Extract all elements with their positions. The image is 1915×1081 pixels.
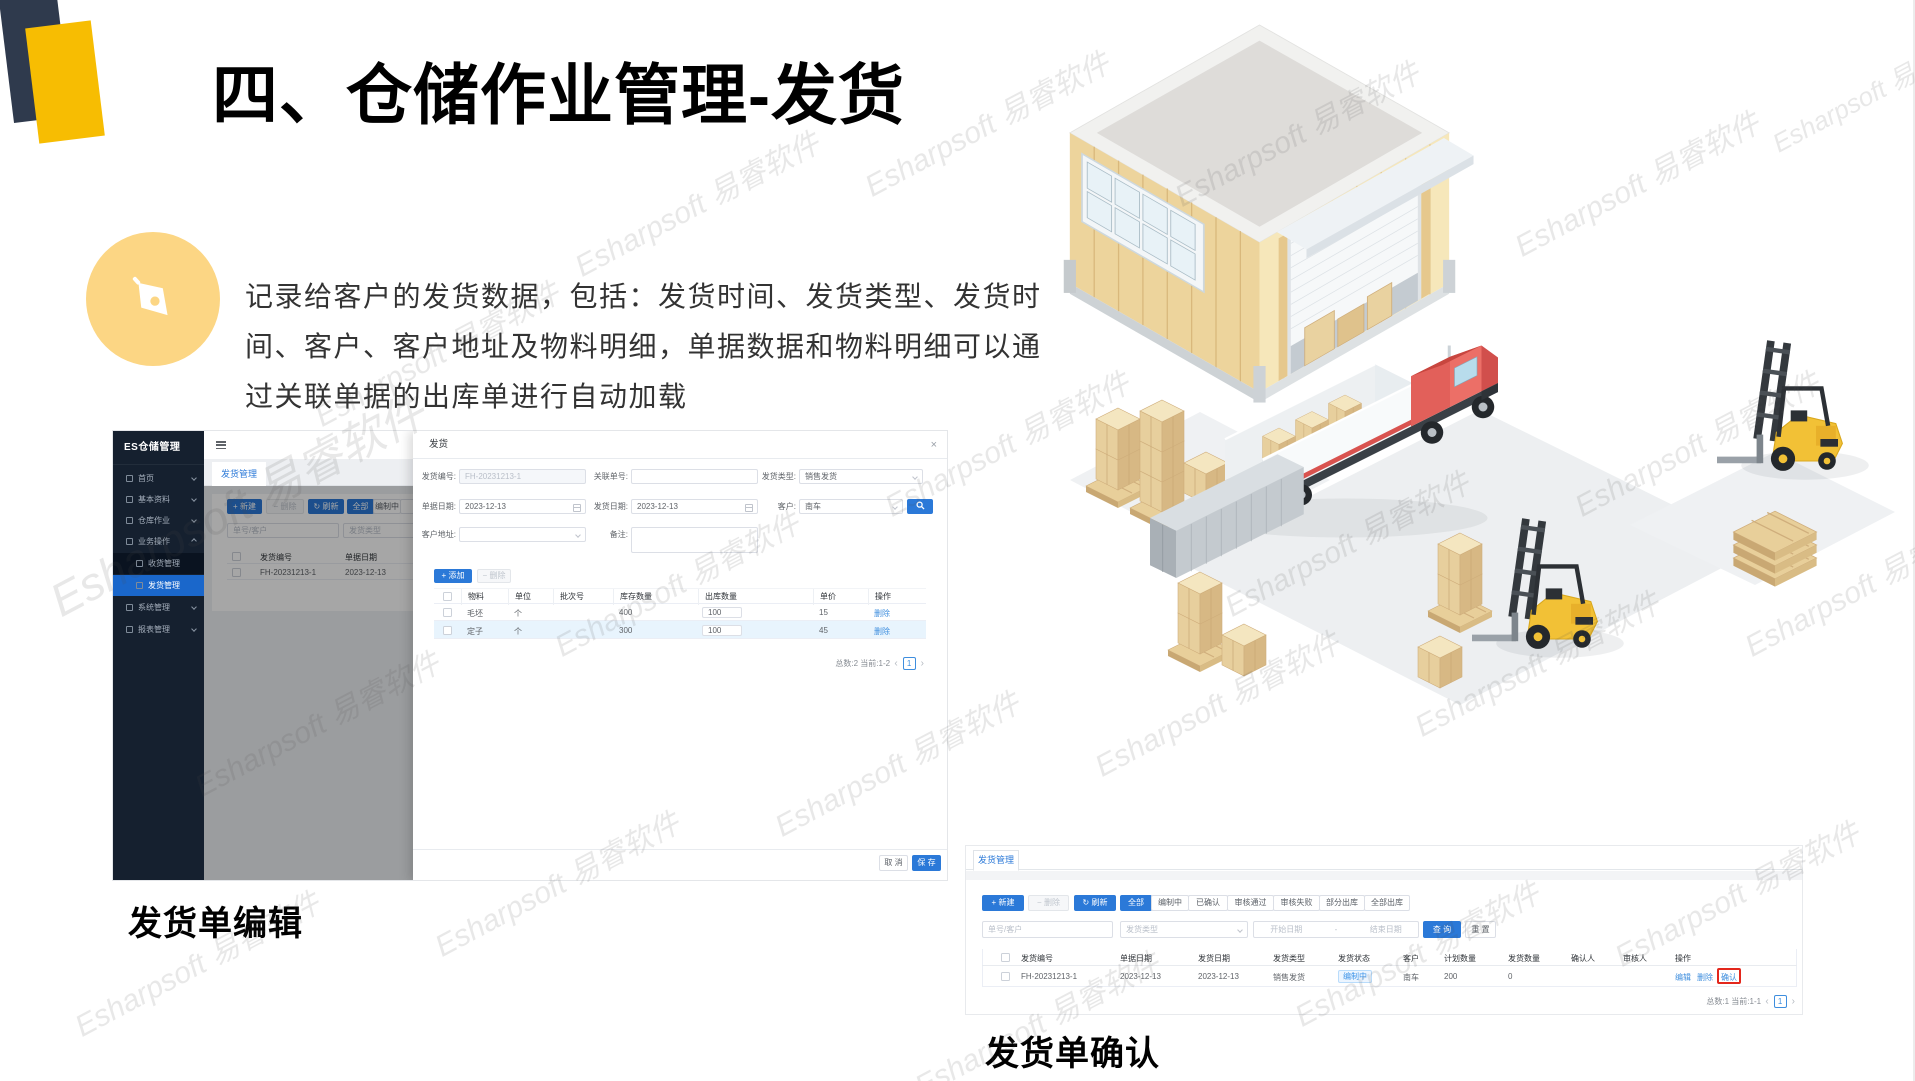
desc-line: 记录给客户的发货数据，包括：发货时间、发货类型、发货时: [245, 272, 1055, 322]
chevron-down-icon: [575, 532, 581, 538]
chevron-down-icon: [191, 475, 197, 481]
receiving-icon: [136, 560, 143, 567]
sidebar-item-shipping[interactable]: 发货管理: [113, 575, 204, 596]
field-label: 客户:: [749, 499, 796, 514]
chevron-down-icon: [892, 504, 898, 510]
remove-detail-button[interactable]: − 删除: [477, 569, 511, 583]
chevron-down-icon: [191, 604, 197, 610]
plus-icon: +: [992, 898, 997, 907]
dialog-header: 发货 ×: [413, 431, 948, 459]
caption-edit: 发货单编辑: [128, 896, 303, 945]
sidebar-item-business-ops[interactable]: 业务操作: [113, 531, 204, 552]
doc-date-field[interactable]: 2023-12-13: [459, 499, 586, 514]
field-label: 单据日期:: [413, 499, 456, 514]
sidebar-item-base-data[interactable]: 基本资料: [113, 489, 204, 510]
add-detail-button[interactable]: + 添加: [434, 569, 472, 583]
row-checkbox[interactable]: [443, 626, 452, 635]
chevron-down-icon: [191, 517, 197, 523]
page-number[interactable]: 1: [1774, 995, 1787, 1008]
page-number[interactable]: 1: [903, 657, 916, 670]
forklift-right: [1717, 340, 1869, 479]
row-checkbox[interactable]: [443, 608, 452, 617]
remark-textarea[interactable]: [631, 527, 758, 553]
watermark-text: Esharpsoft 易睿软件: [566, 119, 827, 285]
home-icon: [126, 475, 133, 482]
delete-link[interactable]: 删除: [874, 626, 890, 637]
field-label: 关联单号:: [581, 469, 628, 484]
table-row[interactable]: FH-20231213-1 2023-12-13 2023-12-13 销售发货…: [982, 966, 1797, 987]
select-all-checkbox[interactable]: [1001, 953, 1010, 962]
feature-description: 记录给客户的发货数据，包括：发货时间、发货类型、发货时 间、客户、客户地址及物料…: [245, 272, 1055, 422]
delete-link[interactable]: 删除: [1697, 972, 1713, 983]
base-data-icon: [126, 496, 133, 503]
reset-button[interactable]: 重 置: [1465, 921, 1496, 938]
field-label: 发货编号:: [413, 469, 456, 484]
customer-search-button[interactable]: [907, 499, 933, 514]
desc-line: 过关联单据的出库单进行自动加载: [245, 372, 1055, 422]
sidebar-item-warehouse-ops[interactable]: 仓库作业: [113, 510, 204, 531]
out-qty-input[interactable]: 100: [702, 625, 742, 636]
order-customer-input[interactable]: 单号/客户: [982, 921, 1113, 938]
page-title: 四、仓储作业管理-发货: [212, 42, 905, 138]
customer-select[interactable]: 南车: [799, 499, 903, 514]
field-label: 发货类型:: [749, 469, 796, 484]
field-label: 客户地址:: [413, 527, 456, 542]
delete-button[interactable]: − 删除: [1028, 895, 1069, 911]
confirm-link[interactable]: 确认: [1721, 973, 1737, 982]
refresh-icon: ↻: [1083, 898, 1090, 907]
select-all-checkbox[interactable]: [443, 592, 452, 601]
filter-drafting[interactable]: 编制中: [1151, 895, 1189, 911]
minus-icon: −: [1037, 898, 1042, 907]
next-page-icon[interactable]: ›: [1792, 996, 1795, 1007]
sidebar: ES仓储管理 首页 基本资料 仓库作业 业务操作: [113, 431, 204, 880]
desc-line: 间、客户、客户地址及物料明细，单据数据和物料明细可以通: [245, 322, 1055, 372]
out-qty-input[interactable]: 100: [702, 607, 742, 618]
page-strip: [966, 871, 1802, 880]
chevron-down-icon: [912, 474, 918, 480]
filter-audit-failed[interactable]: 审核失败: [1273, 895, 1320, 911]
confirm-highlight-box: 确认: [1717, 968, 1741, 984]
chevron-down-icon: [191, 626, 197, 632]
business-ops-icon: [126, 538, 133, 545]
dialog-footer-divider: [413, 849, 948, 850]
calendar-icon: [573, 504, 581, 512]
detail-row[interactable]: 毛坯 个 400 100 15 删除: [434, 604, 926, 621]
field-label: 备注:: [581, 527, 628, 542]
new-button[interactable]: + 新建: [982, 895, 1024, 911]
plus-icon: +: [442, 571, 447, 580]
warehouse-building: [1064, 25, 1474, 403]
next-page-icon[interactable]: ›: [921, 658, 924, 669]
ship-date-field[interactable]: 2023-12-13: [631, 499, 758, 514]
dialog-title: 发货: [429, 431, 448, 459]
warehouse-illustration: [1030, 0, 1910, 715]
confirm-screenshot: 发货管理 + 新建 − 删除 ↻ 刷新 全部 编制中 已确认 审核通过 审核失败…: [965, 845, 1803, 1015]
gear-icon: [126, 604, 133, 611]
customer-address-select[interactable]: [459, 527, 586, 542]
edit-link[interactable]: 编辑: [1675, 972, 1691, 983]
corner-shape-yellow: [25, 20, 105, 143]
chevron-down-icon: [191, 496, 197, 502]
tab-shipping[interactable]: 发货管理: [212, 462, 266, 486]
row-checkbox[interactable]: [1001, 972, 1010, 981]
caption-confirm: 发货单确认: [985, 1026, 1160, 1075]
chevron-down-icon: [1237, 927, 1243, 933]
sidebar-item-home[interactable]: 首页: [113, 468, 204, 489]
filter-confirmed[interactable]: 已确认: [1188, 895, 1228, 911]
pen-icon: [124, 270, 182, 328]
ref-order-field[interactable]: [631, 469, 758, 484]
sidebar-item-receiving[interactable]: 收货管理: [113, 553, 204, 574]
date-range-input[interactable]: 开始日期 - 结束日期: [1253, 921, 1419, 938]
prev-page-icon[interactable]: ‹: [894, 658, 897, 669]
tab-shipping[interactable]: 发货管理: [973, 850, 1019, 871]
filter-all[interactable]: 全部: [1120, 895, 1152, 911]
edit-screenshot: ES仓储管理 首页 基本资料 仓库作业 业务操作: [112, 430, 948, 881]
refresh-button[interactable]: ↻ 刷新: [1074, 895, 1116, 911]
collapse-menu-icon[interactable]: [216, 441, 226, 451]
table-header-row: 发货编号 单据日期 发货日期 发货类型 发货状态 客户 计划数量 发货数量 确认…: [982, 949, 1797, 966]
filter-partial-out[interactable]: 部分出库: [1319, 895, 1365, 911]
pen-badge: [86, 232, 220, 366]
query-button[interactable]: 查 询: [1423, 921, 1461, 938]
prev-page-icon[interactable]: ‹: [1765, 996, 1768, 1007]
cancel-button[interactable]: 取 消: [879, 855, 908, 871]
app-title: ES仓储管理: [113, 431, 204, 465]
search-icon: [916, 501, 925, 510]
filter-audit-passed[interactable]: 审核通过: [1227, 895, 1274, 911]
delete-link[interactable]: 删除: [874, 608, 890, 619]
detail-row[interactable]: 定子 个 300 100 45 删除: [434, 621, 926, 639]
close-icon[interactable]: ×: [931, 431, 937, 459]
ship-code-field: FH-20231213-1: [459, 469, 586, 484]
dialog-pagination: 总数:2 当前:1-2 ‹1›: [434, 657, 926, 670]
shipping-dialog: 发货 × 发货编号: FH-20231213-1 关联单号: 发货类型: 销售发…: [413, 431, 948, 881]
status-badge: 编制中: [1338, 970, 1372, 983]
save-button[interactable]: 保 存: [912, 855, 941, 871]
report-icon: [126, 626, 133, 633]
warehouse-icon: [126, 517, 133, 524]
filter-all-out[interactable]: 全部出库: [1364, 895, 1410, 911]
minus-icon: −: [483, 571, 488, 580]
sidebar-item-reports[interactable]: 报表管理: [113, 619, 204, 640]
shipping-icon: [136, 582, 143, 589]
tabbar: [966, 846, 1802, 870]
detail-header-row: 物料 单位 批次号 库存数量 出库数量 单价 操作: [434, 588, 926, 604]
pagination: 总数:1 当前:1-1 ‹1›: [982, 995, 1797, 1008]
chevron-up-icon: [191, 538, 197, 544]
ship-type-select[interactable]: 销售发货: [799, 469, 923, 484]
slide: 四、仓储作业管理-发货 记录给客户的发货数据，包括：发货时间、发货类型、发货时 …: [0, 0, 1915, 1081]
field-label: 发货日期:: [581, 499, 628, 514]
ship-type-select[interactable]: 发货类型: [1120, 921, 1248, 938]
sidebar-item-system[interactable]: 系统管理: [113, 597, 204, 618]
